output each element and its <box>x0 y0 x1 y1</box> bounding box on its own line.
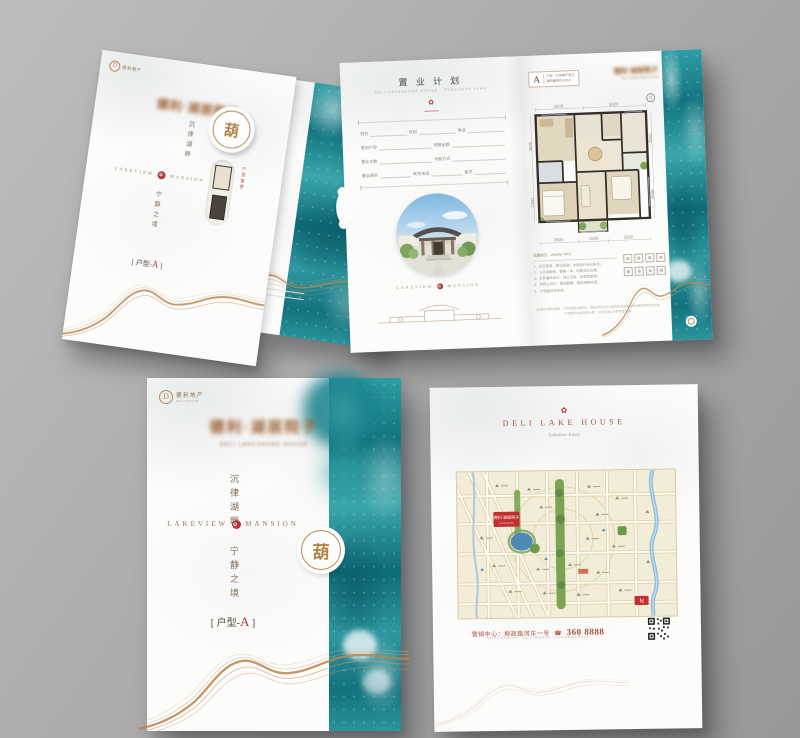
field-label: 备注 <box>464 169 472 175</box>
brand-line: LAKEVIEW✿MANSION <box>348 280 528 293</box>
write-in-line[interactable] <box>467 126 504 133</box>
notes-block: 温馨提示 · WARM TIPS 1、方正格局，南北通透，全明设计采光充足； 2… <box>533 251 618 295</box>
map-art: 德利·湖居院子 LAKESHORE N <box>457 469 677 618</box>
write-in-line[interactable] <box>379 157 432 165</box>
type-prefix: [ 户型- <box>211 618 240 629</box>
unit-type-label: [ 户型-A ] <box>87 250 207 278</box>
write-in-line[interactable] <box>452 154 505 162</box>
dim-label: 4500 <box>650 189 655 199</box>
brand-right: MANSION <box>170 173 205 183</box>
field-label: 付款方式 <box>434 156 450 163</box>
gate-photo-art <box>395 192 480 277</box>
write-in-line[interactable] <box>474 168 506 175</box>
back-brand-sub: Lakeshore Estate <box>430 430 698 439</box>
brand-right: MANSION <box>245 520 299 528</box>
field-label: 意向户型 <box>361 145 377 152</box>
seal-underline <box>424 110 438 112</box>
seal-icon: ✿ <box>430 404 698 417</box>
seal-icon: ✿ <box>232 520 241 529</box>
logo-mark-icon: D <box>109 60 121 72</box>
cover-page: D 德利地产 DELI ESTATE 德利·湖居院子 DELI LAKESHOR… <box>147 378 401 731</box>
map-compass-label: N <box>639 599 643 605</box>
field-label: 置业顾问 <box>362 173 378 180</box>
dim-label: 2900 <box>648 133 653 143</box>
badge-text: 户型 · 三室两厅两卫 建筑面积约128㎡ <box>546 73 575 84</box>
seal-icon: ✿ <box>157 171 166 180</box>
gourd-ring-icon: 葫 <box>210 108 253 151</box>
dim-label: 3300 <box>553 103 563 108</box>
write-in-line[interactable] <box>431 169 463 176</box>
write-in-line[interactable] <box>380 171 412 178</box>
unit-badge: A 户型 · 三室两厅两卫 建筑面积约128㎡ <box>528 70 580 88</box>
field-label: 联系电话 <box>413 171 429 178</box>
qr-code <box>647 617 671 641</box>
legend-icon <box>624 267 633 276</box>
watercolor-blob <box>315 438 375 508</box>
seal-icon: ✿ <box>341 95 521 110</box>
brand-line: LAKEVIEW✿MANSION <box>100 163 220 188</box>
brand-line: LAKEVIEW✿MANSION <box>157 520 309 529</box>
write-in-line[interactable] <box>419 128 456 135</box>
badge-divider <box>543 74 544 84</box>
legend-icon <box>646 266 655 275</box>
seal-icon: ✿ <box>437 283 443 289</box>
dim-label: 1500 <box>589 236 599 241</box>
write-in-line[interactable] <box>370 130 407 137</box>
developer-logo: D 德利地产 DELI ESTATE <box>159 390 204 404</box>
form-rule-top <box>358 117 506 124</box>
disclaimer: 本资料为要约邀请，不构成要约或承诺，相关权利义务以政府批文及商品房买卖合同约定为… <box>531 303 667 318</box>
die-cut-window <box>203 158 236 227</box>
dim-label: 3600 <box>554 237 564 242</box>
gourd-character: 葫 <box>313 538 330 563</box>
developer-logo: D 德利地产 <box>109 60 143 75</box>
brand-right: MANSION <box>447 282 480 288</box>
furniture-legend <box>623 253 662 276</box>
field-label: 电话 <box>457 127 465 133</box>
gourd-character: 葫 <box>223 118 241 141</box>
foam-blob <box>343 630 377 660</box>
back-page: ✿ DELI LAKE HOUSE Lakeshore Estate <box>430 384 703 732</box>
entrance-gate-photo <box>395 192 480 277</box>
blurred-project-name: 德利·湖居院子 <box>179 416 349 437</box>
map-marker-sublabel: LAKESHORE <box>499 522 514 525</box>
brand-left: LAKEVIEW <box>396 284 433 290</box>
logo-name: 德利地产 <box>122 64 143 73</box>
mini-floorplan-fragment-dark <box>209 195 227 221</box>
field-label: 预算金额 <box>434 142 450 149</box>
back-brand: DELI LAKE HOUSE <box>430 416 698 429</box>
spread-right-page: A 户型 · 三室两厅两卫 建筑面积约128㎡ 德利·湖居院子 DELI LAK… <box>519 51 672 346</box>
legend-icon <box>645 253 654 262</box>
legend-icon <box>656 253 665 262</box>
unit-type-label: [ 户型-A ] <box>157 614 309 630</box>
brand-left: LAKEVIEW <box>114 166 154 176</box>
mini-logo-ring-icon <box>688 318 695 325</box>
spread-left-page: 置 业 计 划 DELI LAKESHORE HOUSE · PURCHASE … <box>340 56 531 353</box>
vertical-slogan-top: 沉律湖畔 <box>181 120 195 161</box>
form-row: 姓名 性别 电话 <box>360 126 504 138</box>
open-spread: 置 业 计 划 DELI LAKESHORE HOUSE · PURCHASE … <box>340 49 713 353</box>
location-map: 德利·湖居院子 LAKESHORE N <box>456 468 678 619</box>
dim-label: 3300 <box>623 234 633 239</box>
type-prefix: [ 户型- <box>131 258 152 269</box>
gourd-ring-icon: 葫 <box>301 530 341 570</box>
legend-icon <box>657 266 666 275</box>
map-marker-label: 德利·湖居院子 <box>494 514 519 520</box>
form-row: 意向户型 预算金额 <box>361 140 505 152</box>
floor-plan: 3300 3900 3600 1500 3300 3600 3300 2900 … <box>527 101 658 248</box>
form-row: 置业顾问 联系电话 备注 <box>362 168 506 180</box>
brand-left: LAKEVIEW <box>167 520 228 528</box>
gourd-logo-medallion: 葫 <box>297 526 345 574</box>
logo-mark-icon: D <box>159 390 173 404</box>
write-in-line[interactable] <box>379 143 432 151</box>
legend-icon <box>634 254 643 263</box>
logo-sub: DELI ESTATE <box>176 399 204 403</box>
form-row: 置业次数 付款方式 <box>361 154 505 166</box>
vertical-slogan-bottom: 宁静之境 <box>148 190 162 231</box>
type-suffix: ] <box>249 618 255 629</box>
field-label: 置业次数 <box>361 159 377 166</box>
foam-blob <box>363 670 391 694</box>
gold-wave-art <box>430 665 631 728</box>
write-in-line[interactable] <box>452 140 505 148</box>
folded-cover: D 德利地产 德利·湖居院子 沉律湖畔 LAKEVIEW✿MANSION 宁静之… <box>62 50 297 366</box>
logo-text: 德利地产 DELI ESTATE <box>176 391 204 403</box>
type-letter: A <box>240 614 249 629</box>
dim-label: 3600 <box>528 141 533 151</box>
type-suffix: ] <box>158 262 163 270</box>
badge-letter: A <box>533 74 540 84</box>
badge-line2: 建筑面积约128㎡ <box>546 78 575 84</box>
blurred-project-sub: DELI LAKESHORE HOUSE <box>179 442 349 448</box>
logo-name: 德利地产 <box>176 391 204 399</box>
purchase-plan-form: 姓名 性别 电话 意向户型 预算金额 置业次数 付款方式 置业顾问 联系电话 备… <box>358 117 508 189</box>
field-label: 姓名 <box>360 131 368 137</box>
mini-floorplan-fragment <box>212 165 232 191</box>
form-rule-bottom <box>360 182 508 189</box>
legend-icon <box>623 254 632 263</box>
vertical-red-caption: 户型鉴赏 <box>238 166 247 191</box>
dim-label: 3900 <box>609 101 619 106</box>
brochure-mockup-scene: D 德利地产 德利·湖居院子 沉律湖畔 LAKEVIEW✿MANSION 宁静之… <box>0 0 800 738</box>
legend-icon <box>635 267 644 276</box>
dim-label: 3300 <box>530 197 535 207</box>
gate-line-art <box>374 295 505 326</box>
field-label: 性别 <box>409 129 417 135</box>
vertical-slogan-bottom: 宁静之境 <box>228 546 241 602</box>
